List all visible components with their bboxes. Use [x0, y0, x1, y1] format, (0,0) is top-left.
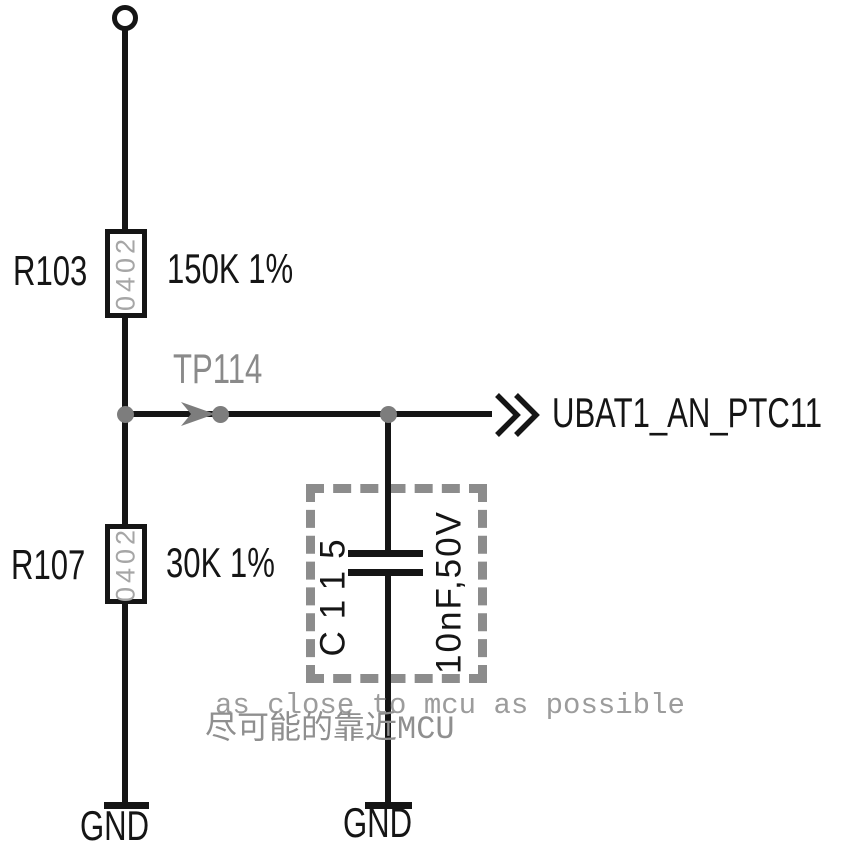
junction-dot-left: [117, 406, 134, 423]
testpoint-arrow-icon: [181, 400, 217, 428]
capacitor-value-label: 10nF,50V: [432, 510, 467, 674]
capacitor-plate-top: [348, 550, 423, 557]
wire-junction-to-cap: [385, 416, 391, 552]
wire-junction-to-r107: [122, 416, 128, 525]
capacitor-plate-bottom: [348, 569, 423, 576]
resistor-r107-ref-label: R107: [11, 544, 85, 586]
resistor-r107-body: 0402: [105, 524, 147, 604]
input-terminal-circle: [112, 5, 138, 31]
wire-terminal-to-r103: [122, 30, 128, 230]
net-label: UBAT1_AN_PTC11: [552, 392, 822, 434]
wire-r103-to-junction: [122, 317, 128, 414]
resistor-r103-ref-label: R103: [13, 250, 87, 292]
schematic-canvas: 0402 R103 150K 1% 0402 R107 30K 1% TP114…: [0, 0, 844, 852]
note-chinese: 尽可能的靠近MCU: [205, 714, 455, 746]
resistor-r103-body: 0402: [105, 229, 147, 318]
resistor-r103-package-label: 0402: [113, 235, 140, 311]
testpoint-label: TP114: [173, 348, 262, 390]
wire-horizontal-net: [122, 411, 492, 417]
junction-dot-capacitor: [380, 406, 397, 423]
resistor-r107-package-label: 0402: [113, 526, 140, 602]
resistor-r103-value-label: 150K 1%: [167, 248, 293, 290]
net-output-chevron-icon: [493, 391, 545, 439]
gnd-label-right: GND: [343, 802, 412, 844]
capacitor-ref-label: C115: [316, 527, 351, 656]
gnd-label-left: GND: [80, 805, 149, 847]
wire-r107-to-gnd: [122, 603, 128, 803]
resistor-r107-value-label: 30K 1%: [166, 542, 275, 584]
